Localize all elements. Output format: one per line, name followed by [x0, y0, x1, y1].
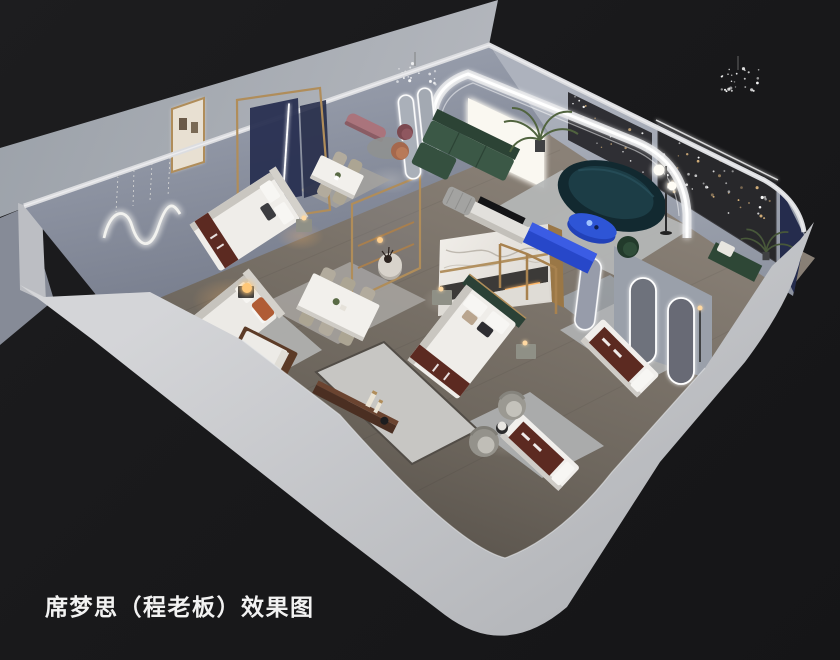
- caption: 席梦思（程老板）效果图: [45, 588, 315, 622]
- gallery-doorway: [172, 98, 204, 172]
- chand-dots-2: [721, 67, 760, 92]
- green-accent-chair: [617, 236, 639, 258]
- scene: [0, 0, 840, 660]
- render-canvas: 席梦思（程老板）效果图: [0, 0, 840, 660]
